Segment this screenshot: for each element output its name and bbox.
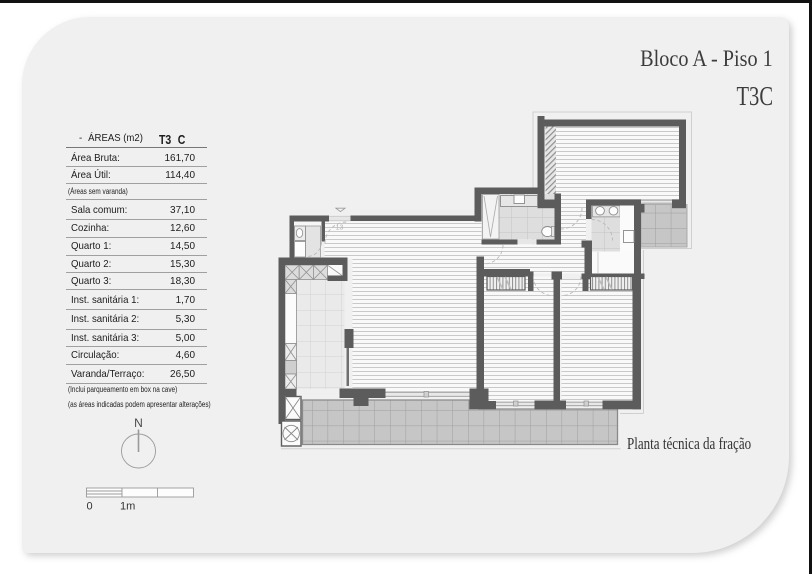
svg-text:0: 0 bbox=[87, 501, 93, 513]
svg-text:13: 13 bbox=[336, 225, 344, 232]
svg-text:1m: 1m bbox=[120, 501, 135, 513]
svg-text:N: N bbox=[134, 416, 143, 430]
